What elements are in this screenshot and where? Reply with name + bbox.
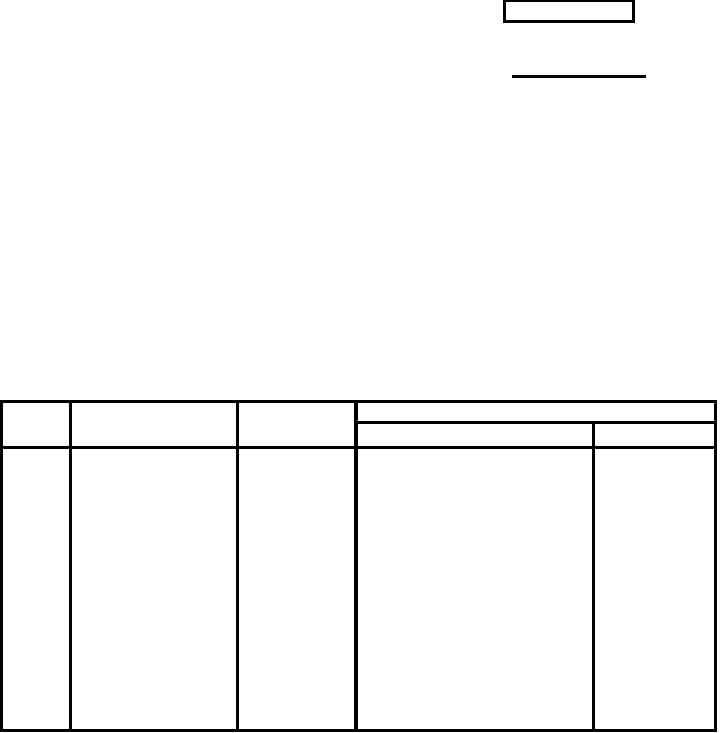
group-header-cell bbox=[358, 403, 714, 421]
body-cell-4 bbox=[358, 449, 592, 729]
table-border-bottom bbox=[0, 729, 717, 732]
body-cell-2 bbox=[72, 449, 236, 729]
body-cell-5 bbox=[595, 449, 714, 729]
header-underline bbox=[512, 75, 646, 78]
document-page bbox=[0, 0, 720, 733]
body-cell-1 bbox=[3, 449, 69, 729]
body-cell-3 bbox=[239, 449, 354, 729]
sub-header-cell-2 bbox=[595, 424, 714, 446]
header-cell-1 bbox=[3, 403, 69, 446]
sub-header-cell-1 bbox=[358, 424, 592, 446]
header-box bbox=[503, 0, 635, 23]
header-cell-3 bbox=[239, 403, 354, 446]
table-border-right bbox=[714, 400, 717, 732]
header-cell-2 bbox=[72, 403, 236, 446]
